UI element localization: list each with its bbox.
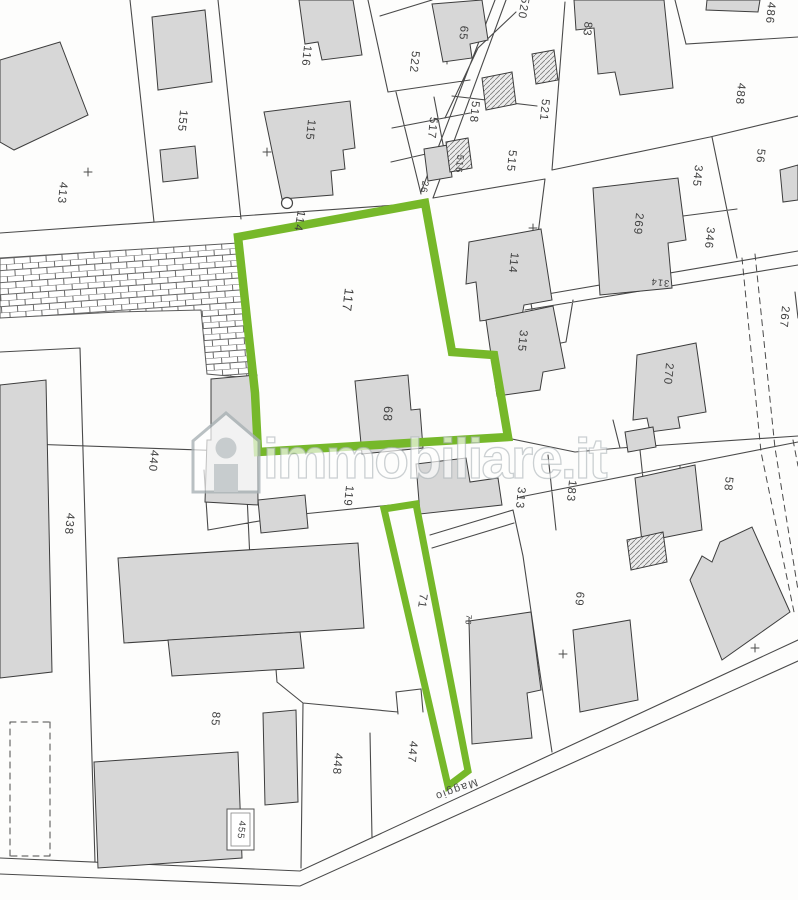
building	[780, 165, 798, 202]
highlight-parcel-71	[384, 504, 468, 786]
building-hatched	[532, 50, 558, 84]
building	[574, 0, 673, 95]
building	[635, 465, 702, 542]
parcel-label: 440	[146, 449, 160, 472]
parcel-label: 85	[208, 711, 221, 727]
parcel-label: 155	[175, 109, 189, 132]
building	[690, 527, 790, 660]
parcel-label: 488	[733, 82, 747, 105]
building	[118, 543, 364, 643]
parcel-label: 117	[339, 287, 357, 312]
building	[573, 620, 638, 712]
parcel-label: 116	[299, 45, 313, 67]
watermark-text: immobiliare.it	[263, 427, 608, 491]
parcel-label: 515	[504, 149, 518, 172]
building	[706, 0, 760, 12]
parcel-label: 114	[291, 209, 307, 232]
parcel-label: 447	[405, 740, 419, 763]
building-hatched	[482, 72, 516, 110]
parcel-label: 26	[417, 180, 430, 194]
parcel-label: 486	[763, 1, 777, 24]
parcel-label: 522	[407, 50, 421, 73]
parcel-label: 56	[753, 148, 766, 164]
parcel-label: 346	[702, 226, 716, 249]
parcel-label: 71	[415, 593, 429, 609]
parcel-label: 516	[453, 154, 466, 174]
building	[152, 10, 212, 90]
parcel-label: 270	[661, 362, 675, 385]
parcel-label: 269	[631, 212, 645, 235]
parcel-label: 68	[380, 406, 395, 423]
survey-point-marker	[282, 198, 293, 209]
building	[160, 146, 198, 182]
building	[0, 42, 88, 150]
building	[168, 632, 304, 676]
paved-brick-area	[0, 243, 249, 378]
parcel-label: 455	[235, 820, 248, 840]
parcel-label: 413	[55, 181, 69, 204]
building	[469, 612, 541, 744]
building	[593, 178, 686, 295]
building	[258, 495, 308, 533]
parcel-label: 267	[777, 305, 791, 328]
building	[633, 343, 706, 432]
parcel-label: 438	[62, 512, 76, 535]
parcel-label: 83	[580, 21, 593, 37]
parcel-label: 58	[721, 476, 734, 492]
building	[263, 710, 298, 805]
parcel-label: 521	[537, 98, 551, 121]
parcel-label: 518	[467, 100, 481, 123]
building	[625, 427, 656, 452]
parcel-label: 65	[456, 25, 469, 41]
parcel-label: 314	[650, 276, 670, 289]
parcel-label: 517	[425, 116, 439, 139]
parcel-label: 114	[506, 252, 520, 274]
parcel-label: 115	[303, 119, 317, 141]
cadastral-map-image: 413 155 116 115 522 65 520 83 486 488 56…	[0, 0, 798, 900]
building	[94, 752, 242, 868]
parcel-label: 76	[463, 614, 473, 626]
building	[0, 380, 52, 678]
parcel-label: 520	[515, 0, 531, 20]
parcel-label: 69	[572, 591, 585, 607]
parcel-label: 448	[330, 752, 344, 775]
building-hatched	[627, 532, 667, 570]
parcel-label: 345	[690, 164, 704, 187]
parcel-label: 315	[515, 329, 529, 352]
building	[264, 101, 355, 199]
